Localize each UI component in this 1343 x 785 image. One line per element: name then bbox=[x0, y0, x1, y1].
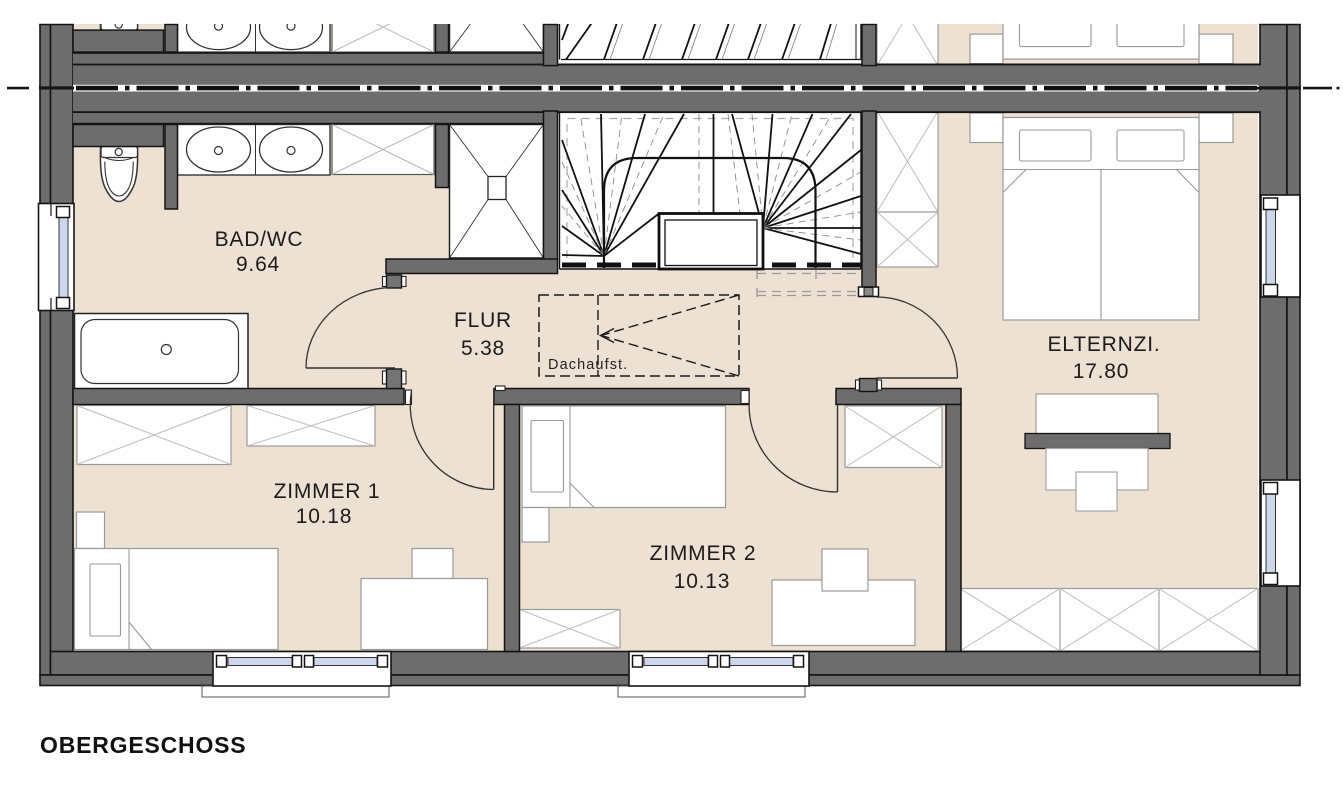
svg-text:17.80: 17.80 bbox=[1073, 360, 1130, 383]
svg-text:OBERGESCHOSS: OBERGESCHOSS bbox=[40, 732, 246, 758]
svg-text:10.13: 10.13 bbox=[674, 570, 731, 593]
svg-text:10.18: 10.18 bbox=[296, 505, 353, 528]
svg-text:ZIMMER 1: ZIMMER 1 bbox=[274, 480, 381, 503]
svg-text:9.64: 9.64 bbox=[236, 253, 280, 276]
svg-text:ZIMMER 2: ZIMMER 2 bbox=[650, 542, 757, 565]
svg-text:BAD/WC: BAD/WC bbox=[215, 228, 304, 251]
svg-text:ELTERNZI.: ELTERNZI. bbox=[1048, 333, 1161, 356]
svg-text:5.38: 5.38 bbox=[461, 337, 505, 360]
svg-text:Dachaufst.: Dachaufst. bbox=[548, 357, 628, 373]
svg-text:FLUR: FLUR bbox=[454, 309, 512, 332]
